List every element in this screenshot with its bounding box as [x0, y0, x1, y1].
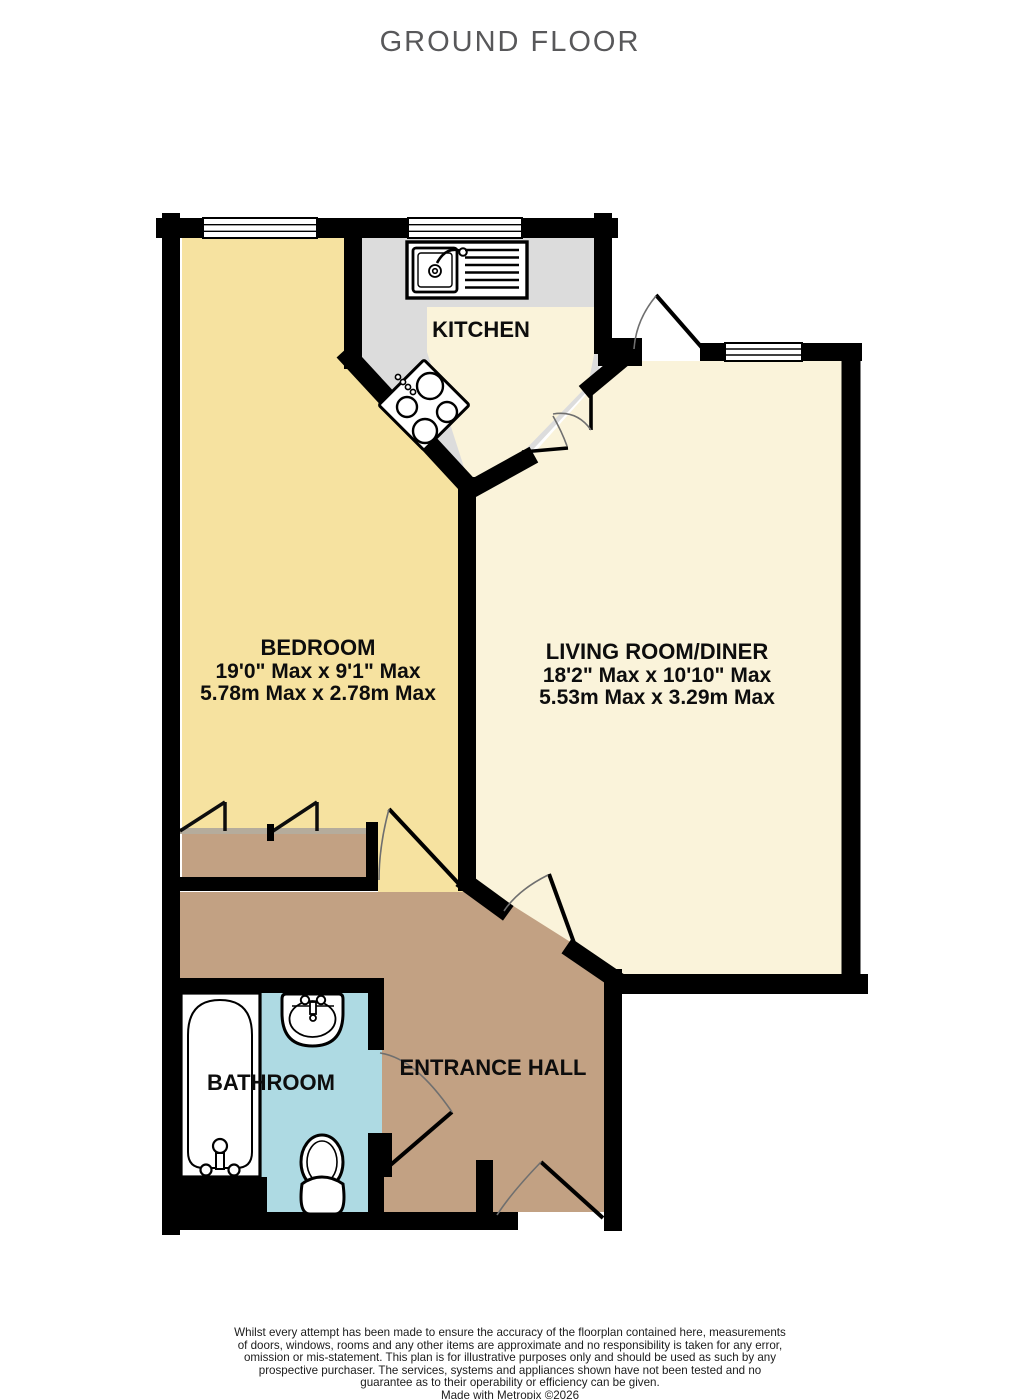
basin-icon [282, 994, 343, 1046]
kitchen-sink-icon [407, 242, 527, 298]
footer: Whilst every attempt has been made to en… [232, 1327, 788, 1399]
page-title: GROUND FLOOR [0, 26, 1020, 59]
bedroom-dims-imperial: 19'0" Max x 9'1" Max [215, 660, 420, 683]
floorplan-page: KITCHEN BEDROOM 19'0" Max x 9'1" Max 5.7… [0, 0, 1020, 1399]
living-room-label: LIVING ROOM/DINER [546, 639, 769, 664]
patio-door-icon [634, 295, 704, 350]
living-room-window-icon [725, 343, 802, 361]
bedroom-dims-metric: 5.78m Max x 2.78m Max [200, 682, 436, 705]
disclaimer-text: Whilst every attempt has been made to en… [232, 1327, 788, 1390]
living-room-dims-imperial: 18'2" Max x 10'10" Max [543, 664, 772, 687]
toilet-icon [301, 1135, 344, 1214]
kitchen-label: KITCHEN [432, 317, 530, 342]
bedroom-label: BEDROOM [261, 635, 376, 660]
credit-text: Made with Metropix ©2026 [232, 1390, 788, 1399]
kitchen-window-icon [408, 218, 522, 238]
living-room-dims-metric: 5.53m Max x 3.29m Max [539, 686, 775, 709]
bedroom-window-icon [203, 218, 317, 238]
floorplan-drawing: KITCHEN BEDROOM 19'0" Max x 9'1" Max 5.7… [0, 0, 1020, 1399]
entrance-hall-label: ENTRANCE HALL [400, 1055, 587, 1080]
bathroom-label: BATHROOM [207, 1070, 335, 1095]
